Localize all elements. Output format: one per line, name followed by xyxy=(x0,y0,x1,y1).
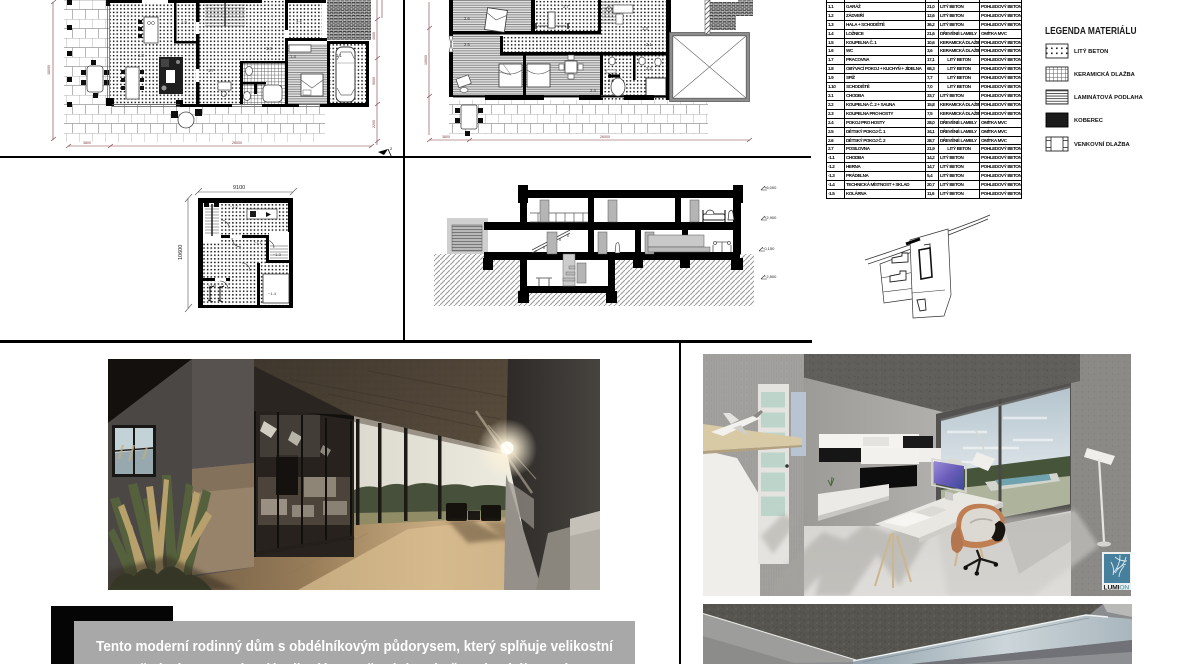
svg-text:2.1: 2.1 xyxy=(646,42,652,47)
svg-text:−1.2: −1.2 xyxy=(230,204,239,209)
svg-text:2.2: 2.2 xyxy=(646,66,652,71)
svg-text:+6,000: +6,000 xyxy=(764,185,777,190)
svg-text:LAMINÁTOVÁ PODLAHA: LAMINÁTOVÁ PODLAHA xyxy=(1074,94,1144,101)
svg-text:2: 2 xyxy=(390,146,393,151)
svg-text:1.4: 1.4 xyxy=(290,54,296,59)
svg-text:10600: 10600 xyxy=(424,55,428,65)
svg-text:LUMION: LUMION xyxy=(1104,585,1130,592)
svg-text:1.3: 1.3 xyxy=(642,26,648,31)
svg-text:18000: 18000 xyxy=(47,65,51,75)
svg-text:2.5: 2.5 xyxy=(464,42,470,47)
svg-text:2200: 2200 xyxy=(372,120,376,128)
svg-text:−1.1: −1.1 xyxy=(254,240,263,245)
svg-text:LITÝ BETON: LITÝ BETON xyxy=(1074,48,1108,55)
svg-text:4000: 4000 xyxy=(372,32,376,40)
svg-text:VENKOVNÍ DLAŽBA: VENKOVNÍ DLAŽBA xyxy=(1074,140,1131,148)
svg-text:−1.5: −1.5 xyxy=(208,283,217,288)
svg-text:1.3: 1.3 xyxy=(266,46,272,51)
svg-text:1.8: 1.8 xyxy=(138,53,144,58)
svg-text:−2,800: −2,800 xyxy=(764,274,777,279)
svg-text:1.7: 1.7 xyxy=(208,68,214,73)
svg-text:2.7: 2.7 xyxy=(563,4,569,9)
svg-text:KERAMICKÁ DLAŽBA: KERAMICKÁ DLAŽBA xyxy=(1074,70,1136,78)
svg-text:9000: 9000 xyxy=(372,77,376,85)
svg-text:KOBEREC: KOBEREC xyxy=(1074,118,1104,124)
svg-text:+2,900: +2,900 xyxy=(764,215,777,220)
svg-text:26000: 26000 xyxy=(232,141,242,145)
svg-text:2.6: 2.6 xyxy=(464,16,470,21)
svg-text:1.9: 1.9 xyxy=(181,20,187,25)
svg-text:9100: 9100 xyxy=(233,185,245,191)
svg-text:2.3: 2.3 xyxy=(608,78,614,83)
svg-text:2.4: 2.4 xyxy=(590,88,596,93)
svg-text:−1.3: −1.3 xyxy=(273,252,282,257)
svg-text:1.2: 1.2 xyxy=(296,18,302,23)
svg-text:26000: 26000 xyxy=(600,135,610,139)
svg-text:10600: 10600 xyxy=(178,245,184,260)
svg-text:3800: 3800 xyxy=(442,135,450,139)
svg-text:−1.4: −1.4 xyxy=(268,291,277,296)
svg-text:1.1: 1.1 xyxy=(336,53,342,58)
svg-text:3800: 3800 xyxy=(83,141,91,145)
svg-text:−0,150: −0,150 xyxy=(762,246,775,251)
